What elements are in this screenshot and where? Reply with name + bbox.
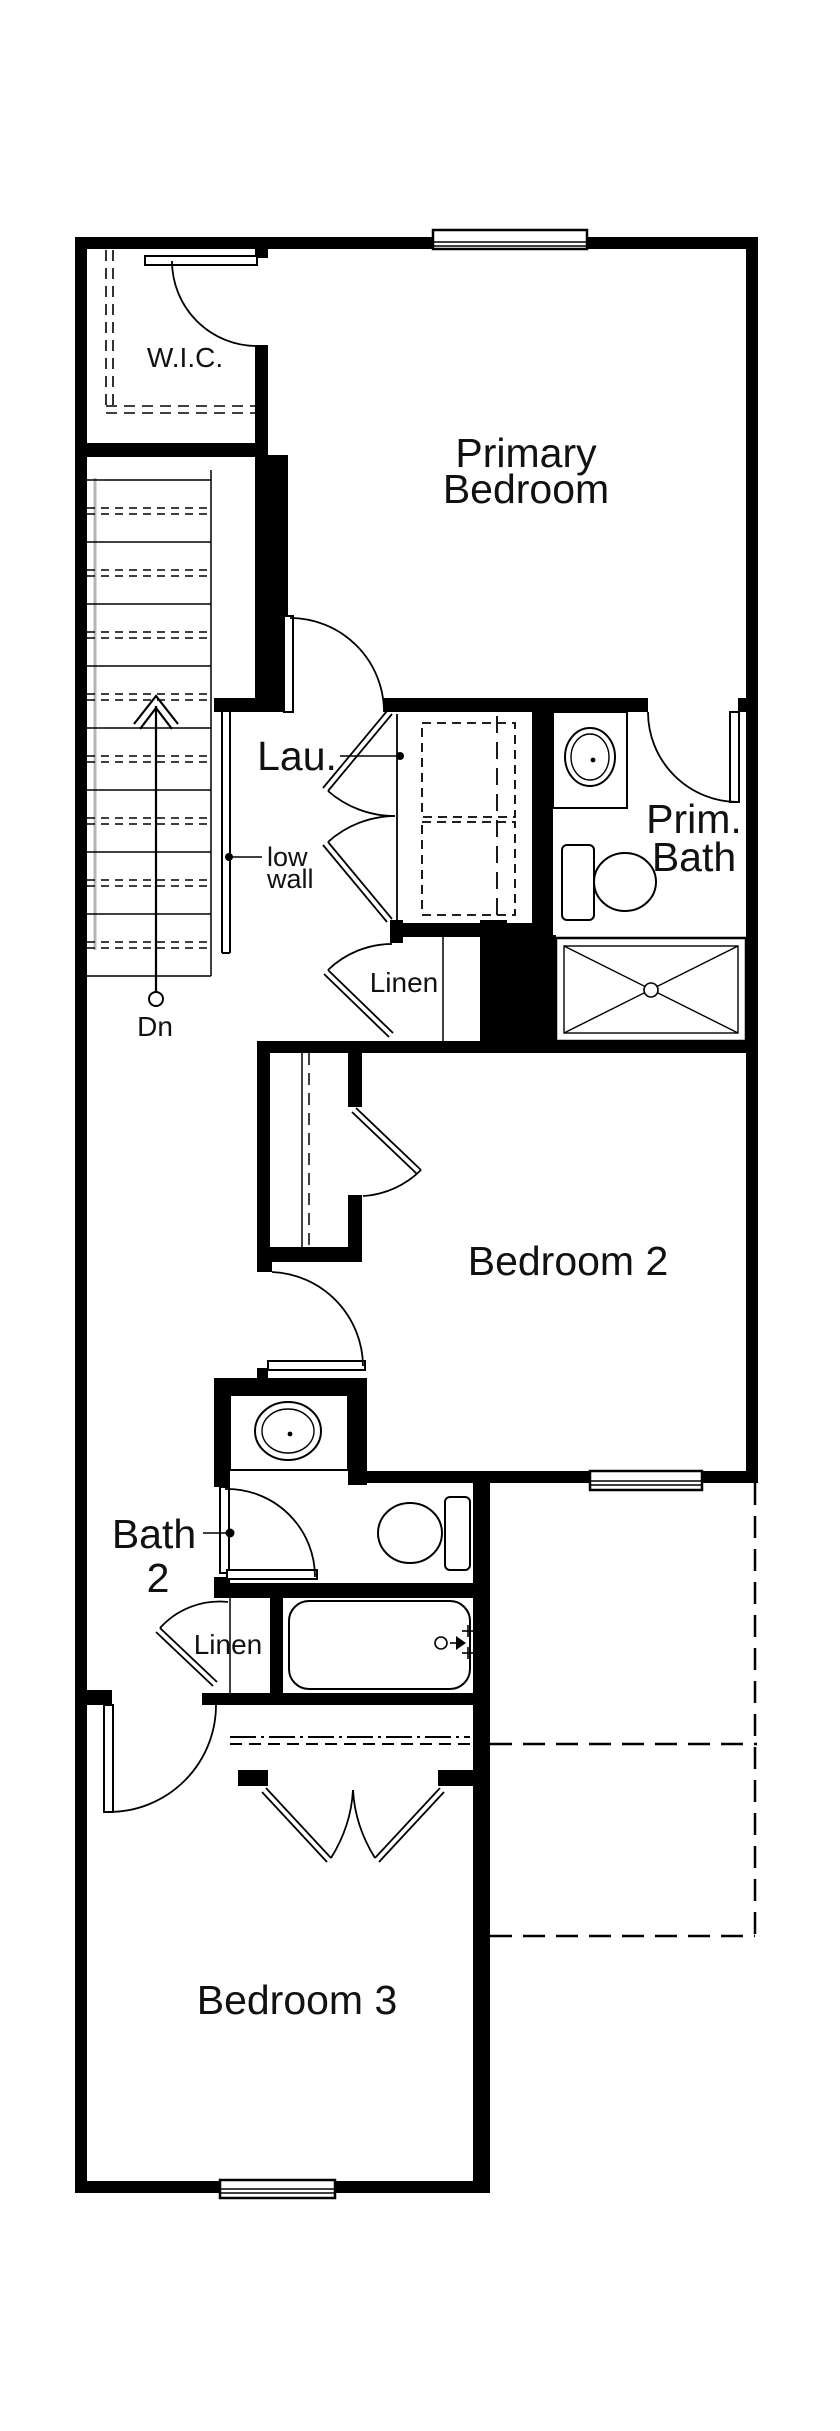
- floorplan-page: W.I.C. Primary Bedroom Lau. Prim. Bath l…: [0, 0, 840, 2431]
- label-low-wall-line2: wall: [266, 864, 314, 894]
- label-linen-upper: Linen: [370, 967, 439, 998]
- outer-walls: [75, 237, 758, 2193]
- label-primary-bath-line2: Bath: [652, 834, 736, 880]
- room-labels: W.I.C. Primary Bedroom Lau. Prim. Bath l…: [112, 342, 742, 2023]
- shower: [556, 938, 746, 1041]
- label-bath2-line2: 2: [147, 1555, 170, 1601]
- laundry-leader: [340, 752, 404, 760]
- bedroom3-entry-door: [104, 1705, 216, 1812]
- low-wall-leader: [225, 853, 262, 861]
- label-primary-bedroom-line2: Bedroom: [443, 466, 609, 512]
- label-stairs-down: Dn: [137, 1011, 173, 1042]
- stair-direction-arrow: [134, 696, 178, 1006]
- primary-bath-door: [648, 712, 739, 802]
- low-wall: [222, 712, 230, 953]
- bath2-leader: [203, 1529, 235, 1538]
- bedroom2-closet-door: [352, 1108, 421, 1196]
- label-wic: W.I.C.: [147, 342, 223, 373]
- floorplan-drawing: W.I.C. Primary Bedroom Lau. Prim. Bath l…: [0, 0, 840, 2431]
- label-bedroom2: Bedroom 2: [468, 1238, 669, 1284]
- bedroom3-closet-bifold: [262, 1788, 444, 1862]
- primary-bath-vanity: [553, 712, 627, 808]
- washer-dryer: [422, 716, 515, 920]
- label-linen-lower: Linen: [194, 1629, 263, 1660]
- bath2-door: [220, 1487, 317, 1579]
- primary-bedroom-door: [284, 616, 384, 712]
- window-bedroom2: [590, 1471, 702, 1490]
- bath2-vanity: [230, 1395, 348, 1470]
- window-bedroom3: [220, 2180, 335, 2198]
- window-top: [433, 230, 587, 249]
- label-bedroom3: Bedroom 3: [197, 1977, 398, 2023]
- windows: [220, 230, 702, 2198]
- staircase: [87, 470, 230, 1006]
- primary-bath-toilet: [562, 845, 656, 920]
- bath2-tub: [289, 1601, 474, 1689]
- bath2-toilet: [378, 1497, 470, 1570]
- wic-door: [145, 256, 257, 346]
- label-bath2-line1: Bath: [112, 1511, 196, 1557]
- label-laundry: Lau.: [257, 733, 337, 779]
- stair-treads: [87, 480, 211, 976]
- bedroom2-entry-door: [268, 1272, 365, 1370]
- roofline-dashed: [230, 1483, 757, 1936]
